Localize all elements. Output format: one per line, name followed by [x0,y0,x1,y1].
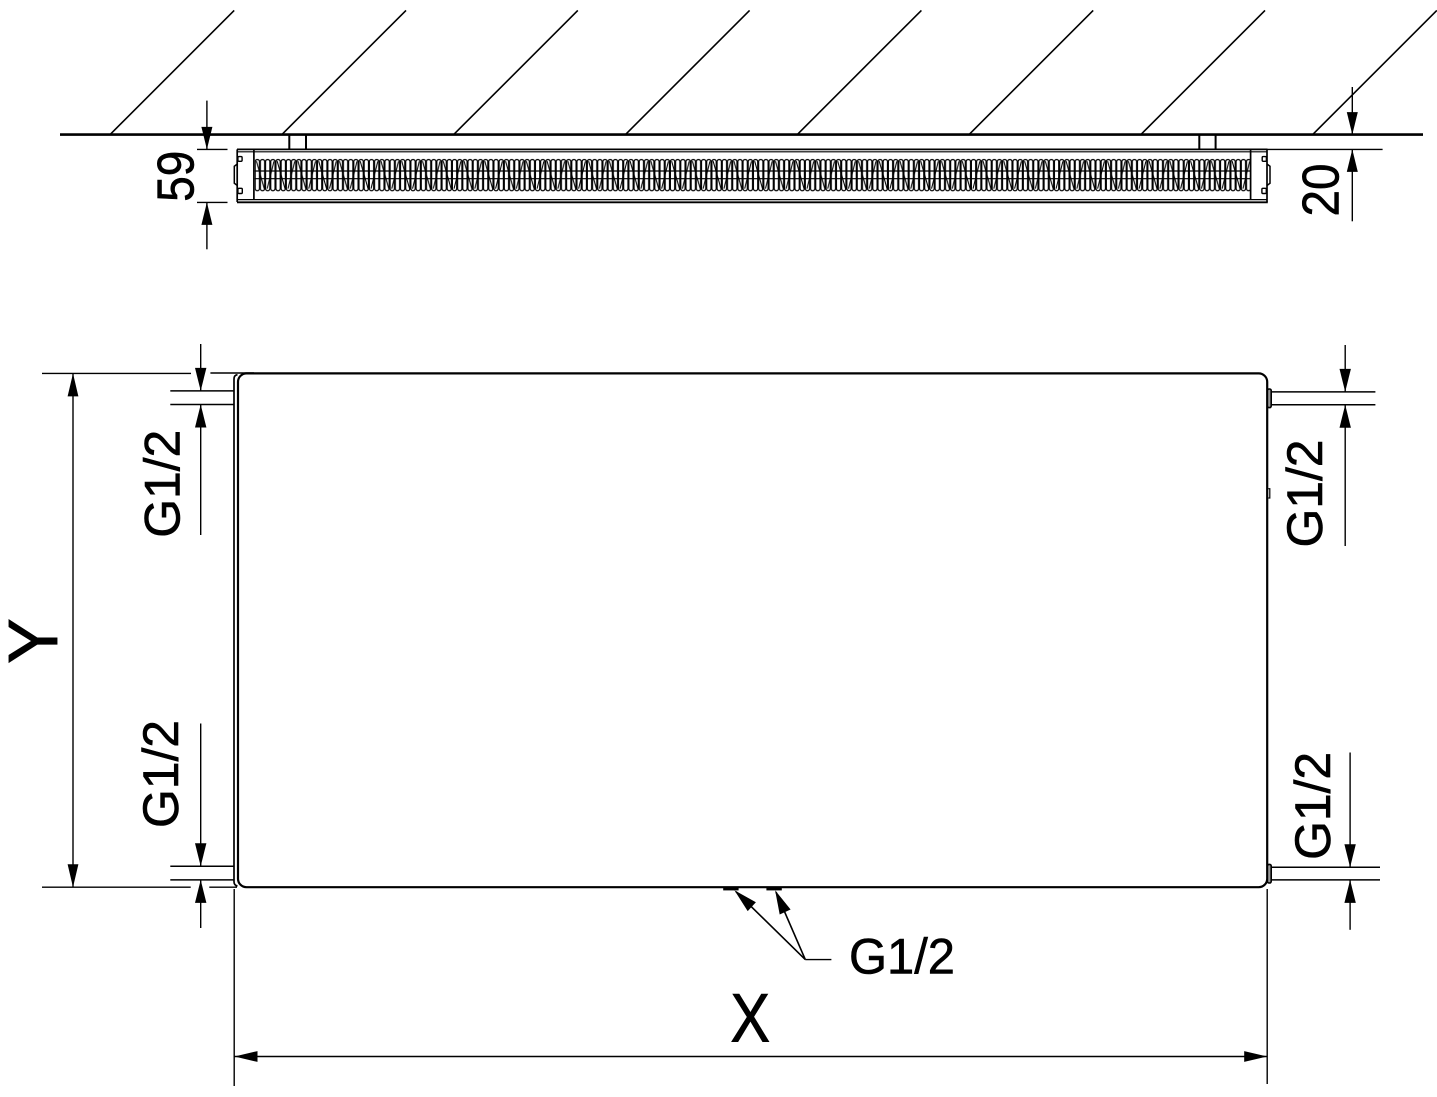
svg-text:G1/2: G1/2 [133,720,189,828]
svg-text:Y: Y [0,618,72,664]
svg-text:G1/2: G1/2 [134,430,190,538]
svg-text:G1/2: G1/2 [849,929,955,985]
svg-text:X: X [731,979,771,1056]
svg-text:20: 20 [1292,164,1350,217]
svg-text:59: 59 [147,151,205,202]
svg-text:G1/2: G1/2 [1277,440,1333,548]
svg-text:G1/2: G1/2 [1285,752,1341,860]
